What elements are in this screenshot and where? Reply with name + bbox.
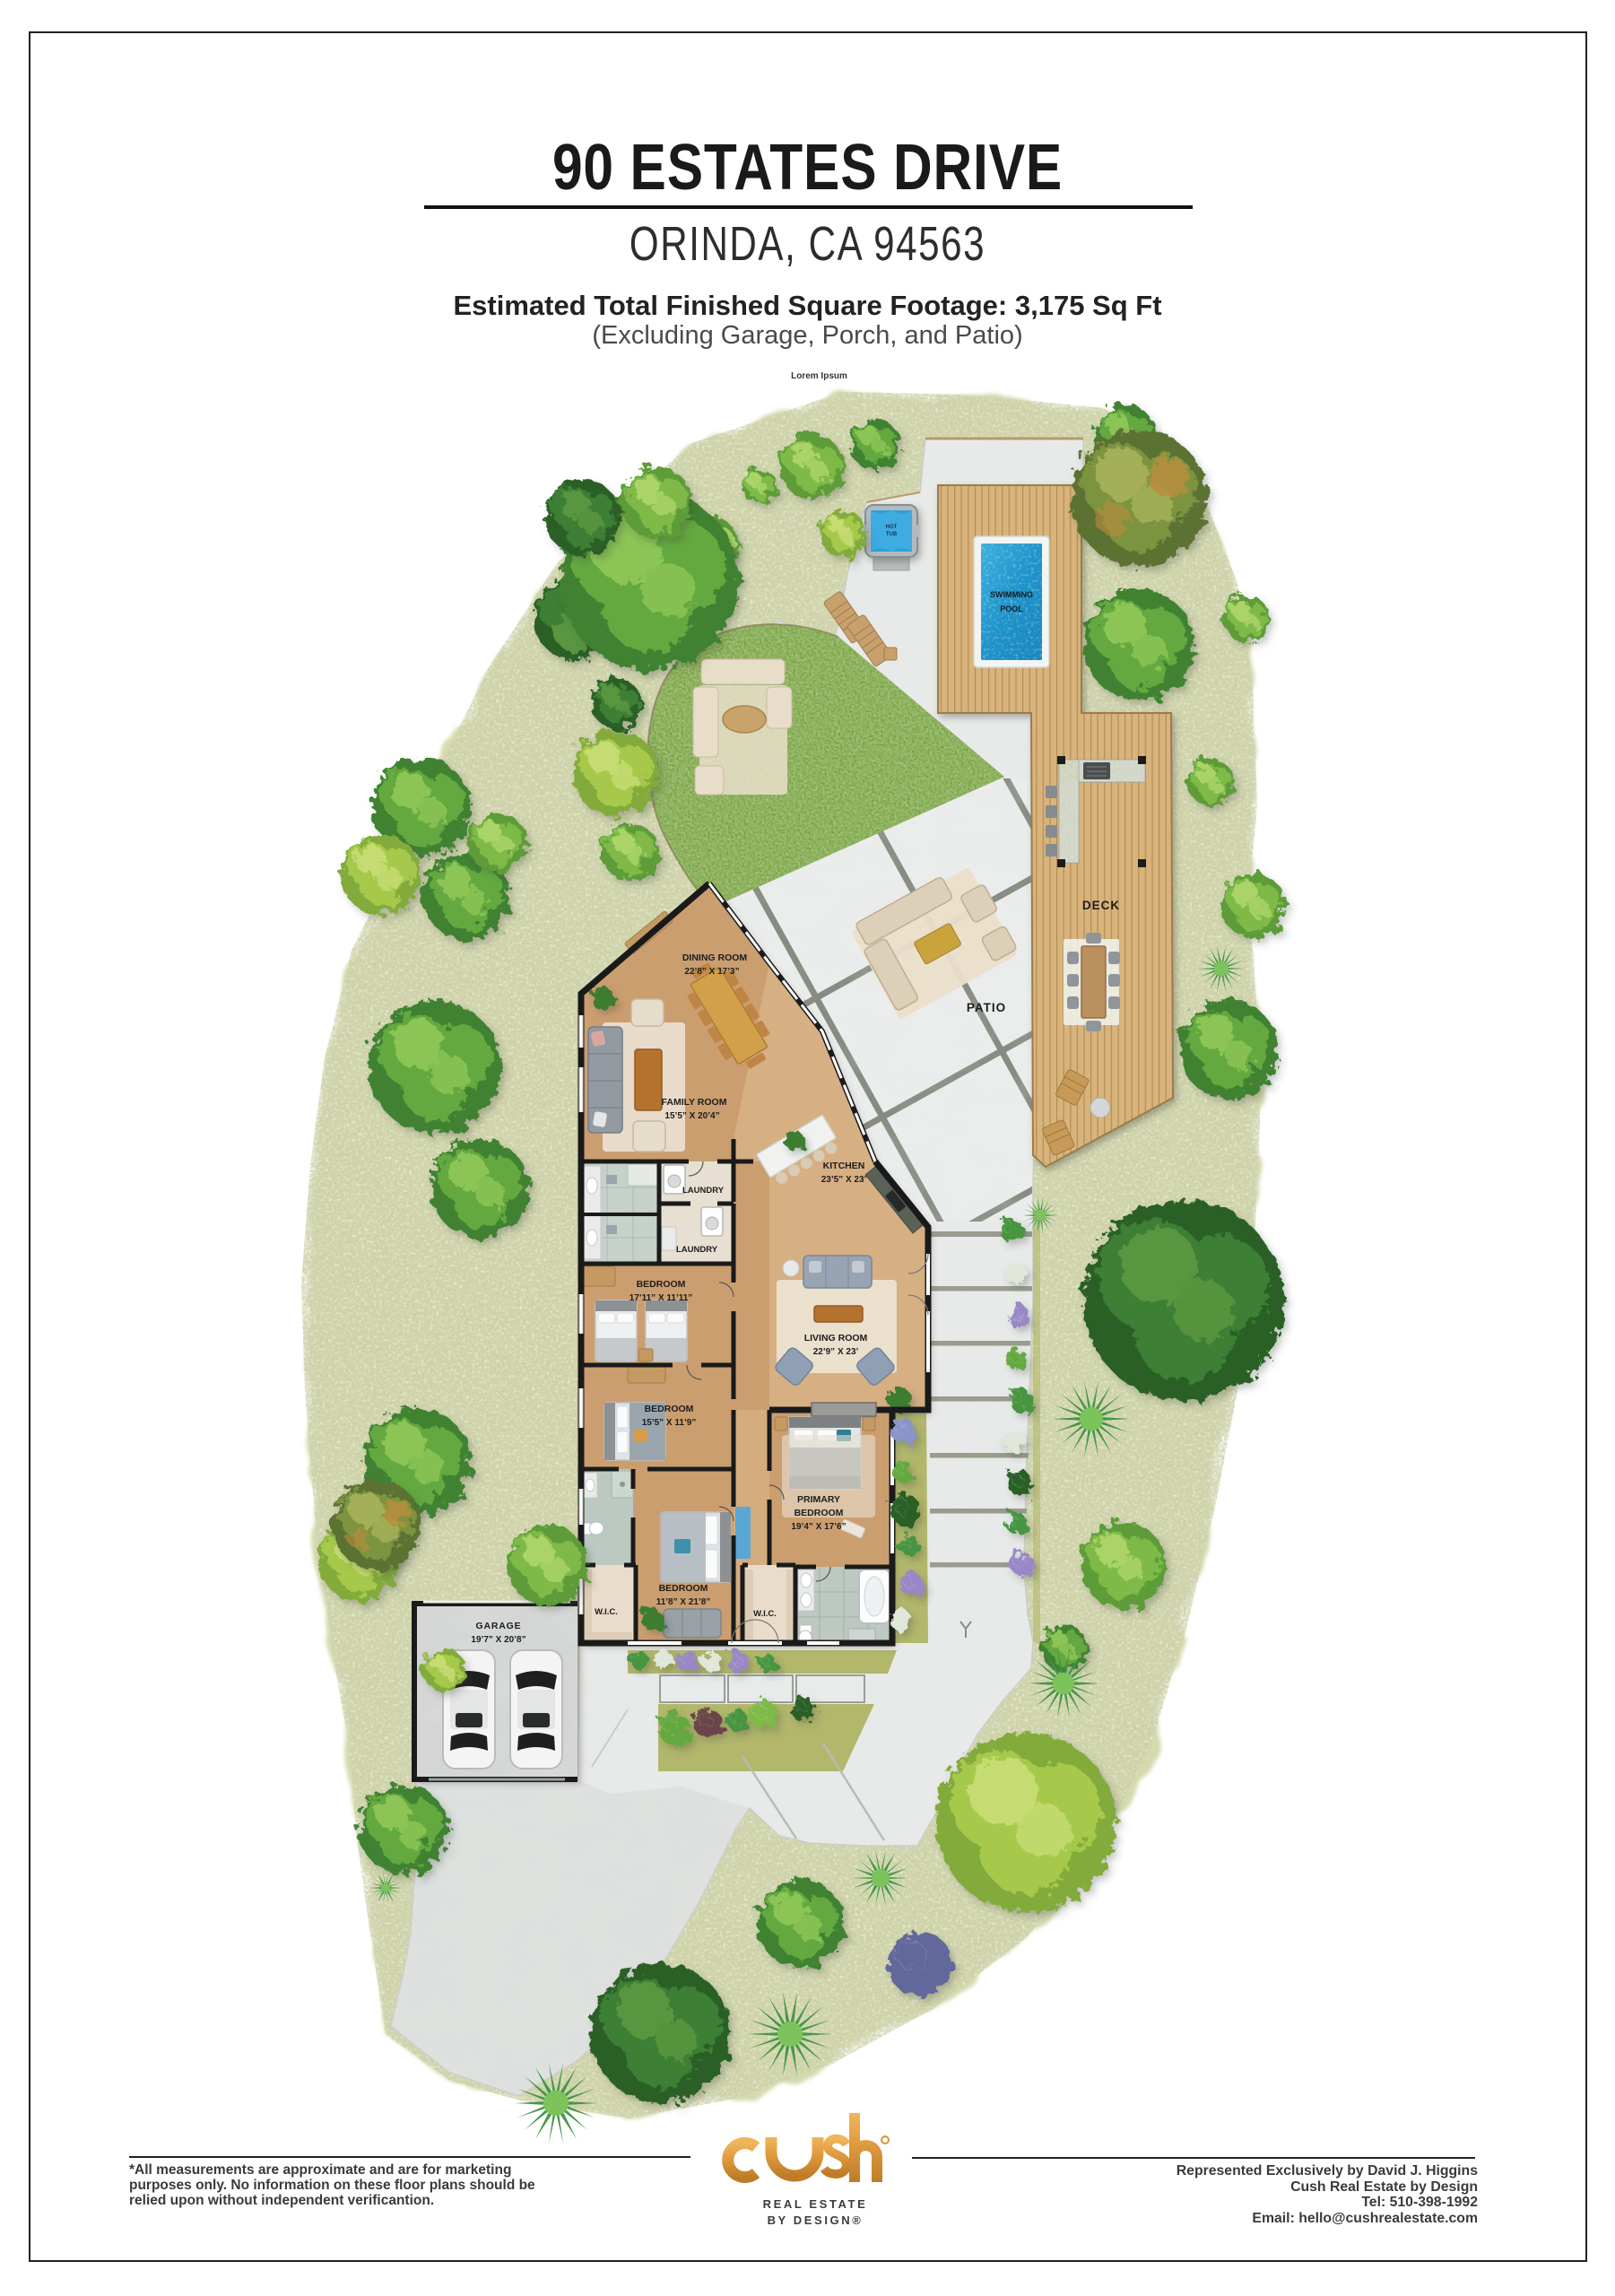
svg-text:19’4” X 17’6”: 19’4” X 17’6”	[791, 1522, 846, 1532]
svg-text:LIVING ROOM: LIVING ROOM	[804, 1333, 868, 1344]
svg-text:DECK: DECK	[1082, 899, 1120, 912]
svg-text:W.I.C.: W.I.C.	[595, 1607, 618, 1617]
svg-text:11’8” X 21’8”: 11’8” X 21’8”	[656, 1597, 711, 1607]
svg-text:17’11” X 11’11”: 17’11” X 11’11”	[630, 1293, 693, 1303]
svg-text:BEDROOM: BEDROOM	[637, 1279, 686, 1290]
svg-text:PATIO: PATIO	[967, 1001, 1006, 1014]
svg-text:BEDROOM: BEDROOM	[645, 1404, 694, 1414]
svg-text:22’8” X 17’3”: 22’8” X 17’3”	[684, 967, 739, 977]
svg-text:FAMILY ROOM: FAMILY ROOM	[662, 1097, 727, 1108]
svg-text:SWIMMING: SWIMMING	[990, 590, 1033, 599]
svg-text:W.I.C.: W.I.C.	[753, 1609, 777, 1619]
svg-text:GARAGE: GARAGE	[476, 1621, 522, 1631]
svg-text:DINING ROOM: DINING ROOM	[682, 952, 748, 963]
svg-text:BEDROOM: BEDROOM	[659, 1583, 708, 1594]
svg-text:15’5” X 11’9”: 15’5” X 11’9”	[642, 1418, 697, 1428]
svg-text:HOT: HOT	[886, 525, 898, 530]
svg-text:22’9” X 23’: 22’9” X 23’	[813, 1347, 859, 1357]
svg-text:POOL: POOL	[1000, 604, 1023, 613]
svg-text:PRIMARY: PRIMARY	[797, 1494, 840, 1505]
svg-text:LAUNDRY: LAUNDRY	[682, 1186, 725, 1196]
svg-text:KITCHEN: KITCHEN	[823, 1161, 865, 1171]
svg-text:LAUNDRY: LAUNDRY	[676, 1245, 718, 1255]
svg-text:TUB: TUB	[886, 532, 898, 537]
svg-text:19’7” X 20’8”: 19’7” X 20’8”	[471, 1635, 525, 1645]
svg-text:23’5” X 23’: 23’5” X 23’	[821, 1175, 867, 1185]
svg-text:BEDROOM: BEDROOM	[794, 1508, 844, 1518]
svg-text:15’5” X 20’4”: 15’5” X 20’4”	[664, 1111, 719, 1121]
